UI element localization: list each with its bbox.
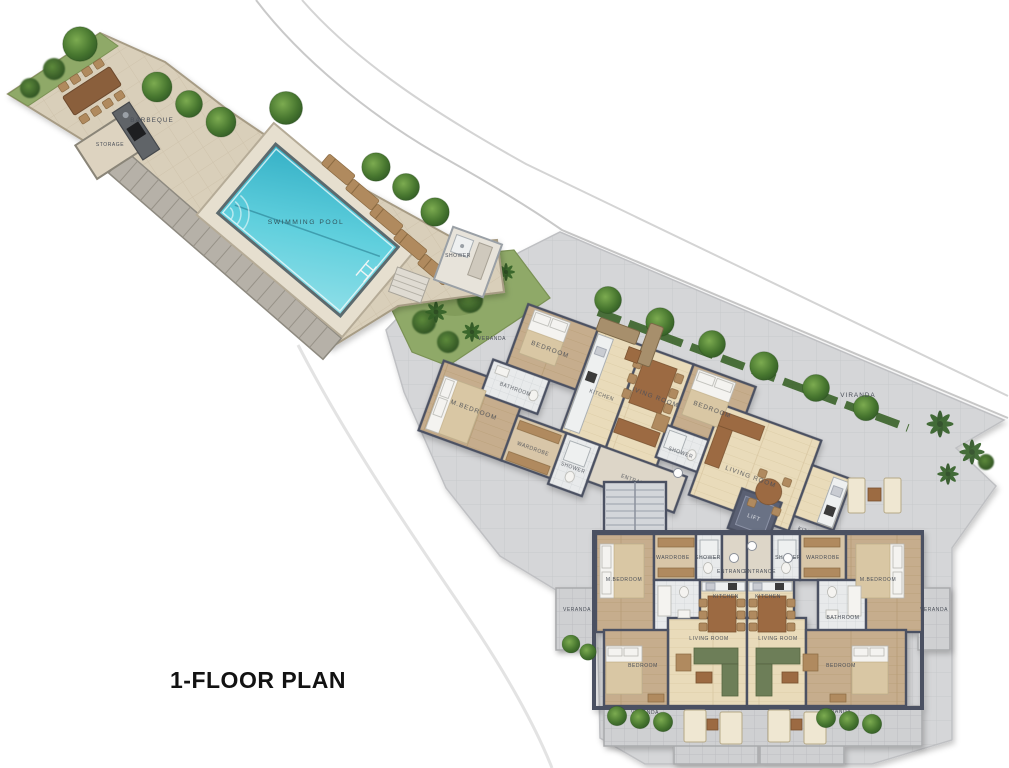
- tree-icon: [63, 27, 98, 62]
- bush-icon: [43, 58, 65, 80]
- label-u4-bedroom: BEDROOM: [826, 663, 856, 669]
- lounger: [768, 710, 790, 742]
- dining-table: [708, 596, 736, 632]
- tree-icon: [816, 708, 836, 728]
- lounger: [684, 710, 706, 742]
- tree-icon: [421, 198, 450, 227]
- tree-icon: [176, 91, 203, 118]
- toilet-icon: [704, 563, 713, 574]
- unit-number-badge: [748, 542, 757, 551]
- plan-title: 1-FLOOR PLAN: [170, 667, 346, 693]
- side-table: [707, 719, 718, 730]
- dresser: [830, 694, 846, 702]
- sofa: [694, 648, 738, 664]
- tree-icon: [562, 635, 580, 653]
- label-u3-veranda-side: VERANDA: [563, 607, 591, 613]
- sofa: [756, 648, 800, 664]
- tree-icon: [206, 107, 236, 137]
- bathtub: [848, 586, 861, 616]
- sofa: [722, 664, 738, 696]
- palm-icon: [425, 301, 447, 323]
- unit-number-badge: [674, 469, 683, 478]
- tree-icon: [853, 395, 879, 421]
- tree-icon: [630, 709, 650, 729]
- building-lower: M.BEDROOM WARDROBE SHOWER ENTRANCE KITCH…: [556, 532, 950, 764]
- floor-plan-page: BEDROOM BATHROOM M.BEDROOM WARDROBE SHOW…: [0, 0, 1009, 768]
- tree-icon: [653, 712, 673, 732]
- label-swimming-pool: SWIMMING POOL: [268, 219, 345, 226]
- label-u3-shower: SHOWER: [695, 555, 721, 561]
- label-pool-shower: SHOWER: [445, 253, 471, 259]
- label-u4-veranda-side: VERANDA: [920, 607, 948, 613]
- sink-icon: [678, 610, 690, 618]
- closet: [804, 568, 840, 577]
- tree-icon: [862, 714, 882, 734]
- label-u3-living: LIVING ROOM: [689, 636, 728, 642]
- unit-number-badge: [730, 554, 739, 563]
- toilet-icon: [782, 563, 791, 574]
- tree-icon: [839, 711, 859, 731]
- side-table: [791, 719, 802, 730]
- toilet-icon: [680, 587, 689, 598]
- tree-icon: [393, 174, 420, 201]
- closet: [658, 538, 694, 547]
- label-u4-bathroom: BATHROOM: [827, 615, 860, 621]
- label-u4-mbedroom: M.BEDROOM: [860, 577, 896, 583]
- label-storage: STORAGE: [96, 142, 124, 148]
- tree-icon: [142, 72, 172, 102]
- palm-icon: [937, 463, 959, 485]
- closet: [804, 538, 840, 547]
- lounger: [720, 712, 742, 744]
- bathtub: [658, 586, 671, 616]
- label-u3-kitchen: KITCHEN: [713, 594, 739, 600]
- bush-icon: [437, 331, 459, 353]
- armchair: [676, 654, 691, 671]
- closet: [658, 568, 694, 577]
- label-veranda-garden: VERANDA: [478, 336, 506, 342]
- dining-table: [758, 596, 786, 632]
- dresser: [648, 694, 664, 702]
- armchair: [803, 654, 818, 671]
- coffee-table: [782, 672, 798, 683]
- label-u2-viranda: VIRANDA: [840, 392, 875, 399]
- tree-icon: [270, 92, 303, 125]
- label-u4-entrance: ENTRANCE: [744, 569, 776, 575]
- bush-icon: [20, 78, 40, 98]
- tree-icon: [595, 287, 622, 314]
- unit-number-badge: [784, 554, 793, 563]
- label-u4-living: LIVING ROOM: [758, 636, 797, 642]
- tree-icon: [580, 644, 597, 661]
- tree-icon: [803, 375, 830, 402]
- sofa: [756, 664, 772, 696]
- label-u3-wardrobe: WARDROBE: [656, 555, 690, 561]
- label-u3-bedroom: BEDROOM: [628, 663, 658, 669]
- tree-icon: [750, 352, 779, 381]
- side-table: [868, 488, 881, 501]
- toilet-icon: [828, 587, 837, 598]
- tree-icon: [607, 706, 627, 726]
- palm-icon: [927, 411, 954, 438]
- lounger: [848, 478, 865, 513]
- label-u4-kitchen: KITCHEN: [755, 594, 781, 600]
- lounger: [884, 478, 901, 513]
- label-barbeque: BARBEQUE: [130, 117, 174, 124]
- bush-icon: [978, 454, 994, 470]
- tree-icon: [362, 153, 391, 182]
- floor-plan-canvas: BEDROOM BATHROOM M.BEDROOM WARDROBE SHOW…: [0, 0, 1009, 768]
- coffee-table: [696, 672, 712, 683]
- label-u3-mbedroom: M.BEDROOM: [606, 577, 642, 583]
- label-u4-wardrobe: WARDROBE: [806, 555, 840, 561]
- tree-icon: [699, 331, 726, 358]
